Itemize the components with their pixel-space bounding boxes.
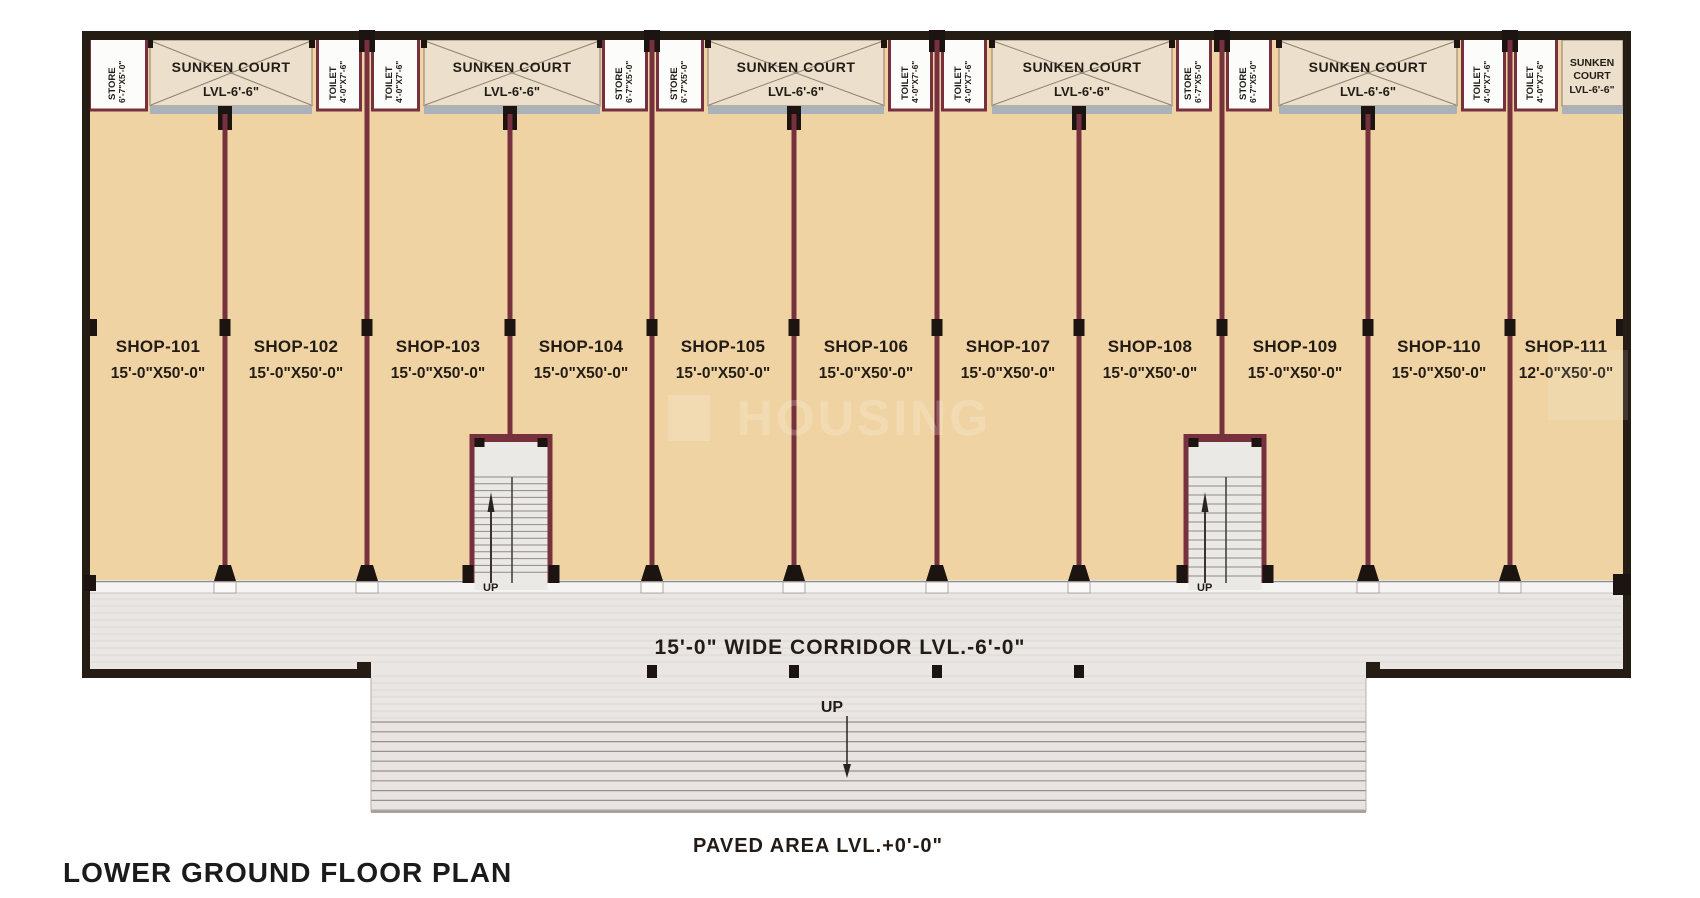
svg-text:LOWER GROUND FLOOR PLAN: LOWER GROUND FLOOR PLAN [63,857,512,888]
svg-text:SUNKEN COURT: SUNKEN COURT [737,59,856,75]
svg-text:6'-7"X5'-0": 6'-7"X5'-0" [1248,61,1258,103]
svg-text:LVL-6'-6": LVL-6'-6" [203,84,259,99]
svg-text:15'-0"X50'-0": 15'-0"X50'-0" [391,365,485,382]
svg-text:SHOP-106: SHOP-106 [824,337,909,356]
svg-text:LVL-6'-6": LVL-6'-6" [484,84,540,99]
svg-text:LVL-6'-6": LVL-6'-6" [768,84,824,99]
svg-text:4'-0"X7'-6": 4'-0"X7'-6" [910,61,920,103]
svg-text:6'-7"X5'-0": 6'-7"X5'-0" [1193,61,1203,103]
svg-text:PAVED AREA LVL.+0'-0": PAVED AREA LVL.+0'-0" [693,835,943,857]
svg-text:LVL-6'-6": LVL-6'-6" [1054,84,1110,99]
svg-text:15'-0"X50'-0": 15'-0"X50'-0" [1103,365,1197,382]
svg-text:SHOP-102: SHOP-102 [254,337,339,356]
svg-text:4'-0"X7'-6": 4'-0"X7'-6" [1535,61,1545,103]
svg-text:SHOP-101: SHOP-101 [116,337,201,356]
svg-text:SHOP-109: SHOP-109 [1253,337,1338,356]
svg-text:15'-0"X50'-0": 15'-0"X50'-0" [1392,365,1486,382]
svg-text:SUNKEN: SUNKEN [1570,57,1614,69]
svg-text:4'-0"X7'-6": 4'-0"X7'-6" [963,61,973,103]
svg-text:SHOP-105: SHOP-105 [681,337,766,356]
svg-text:15'-0" WIDE CORRIDOR LVL.-6'-0: 15'-0" WIDE CORRIDOR LVL.-6'-0" [655,636,1026,659]
svg-text:SHOP-103: SHOP-103 [396,337,481,356]
svg-text:SHOP-108: SHOP-108 [1108,337,1193,356]
svg-text:15'-0"X50'-0": 15'-0"X50'-0" [676,365,770,382]
svg-text:LVL-6'-6": LVL-6'-6" [1569,84,1614,96]
svg-text:4'-0"X7'-6": 4'-0"X7'-6" [1482,61,1492,103]
svg-text:6'-7"X5'-0": 6'-7"X5'-0" [624,61,634,103]
svg-text:15'-0"X50'-0": 15'-0"X50'-0" [111,365,205,382]
svg-text:SUNKEN COURT: SUNKEN COURT [1023,59,1142,75]
svg-text:4'-0"X7'-6": 4'-0"X7'-6" [394,61,404,103]
svg-text:15'-0"X50'-0": 15'-0"X50'-0" [249,365,343,382]
svg-text:4'-0"X7'-6": 4'-0"X7'-6" [338,61,348,103]
svg-text:SHOP-110: SHOP-110 [1397,337,1481,356]
svg-text:HOUSING: HOUSING [737,390,991,446]
svg-text:6'-7"X5'-0": 6'-7"X5'-0" [117,61,127,103]
svg-text:15'-0"X50'-0": 15'-0"X50'-0" [819,365,913,382]
svg-text:15'-0"X50'-0": 15'-0"X50'-0" [534,365,628,382]
svg-text:SUNKEN COURT: SUNKEN COURT [172,59,291,75]
svg-text:COURT: COURT [1573,70,1611,82]
svg-text:UP: UP [483,582,498,594]
svg-text:SUNKEN COURT: SUNKEN COURT [1309,59,1428,75]
svg-text:SUNKEN COURT: SUNKEN COURT [453,59,572,75]
svg-text:UP: UP [821,699,844,716]
svg-text:15'-0"X50'-0": 15'-0"X50'-0" [1248,365,1342,382]
svg-text:LVL-6'-6": LVL-6'-6" [1340,84,1396,99]
svg-text:SHOP-104: SHOP-104 [539,337,624,356]
svg-text:UP: UP [1197,582,1212,594]
svg-text:SHOP-107: SHOP-107 [966,337,1051,356]
svg-text:6'-7"X5'-0": 6'-7"X5'-0" [679,61,689,103]
svg-text:15'-0"X50'-0": 15'-0"X50'-0" [961,365,1055,382]
